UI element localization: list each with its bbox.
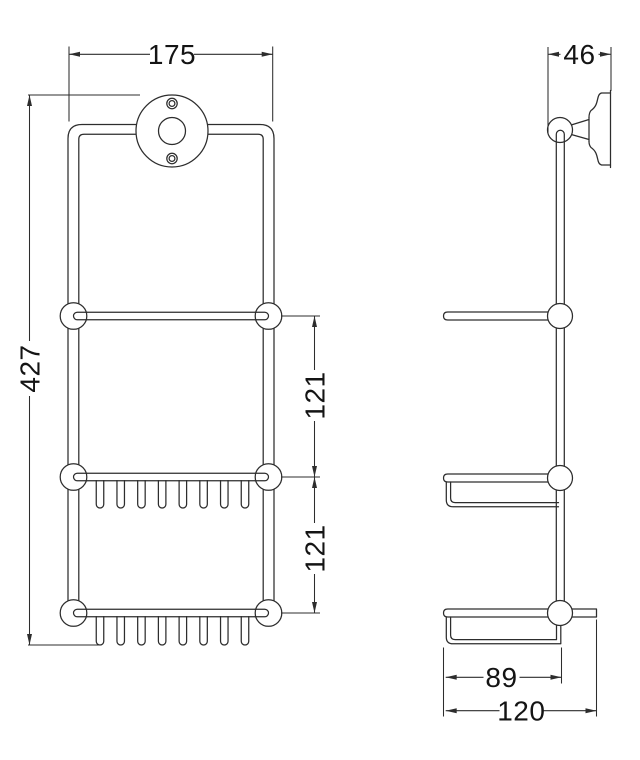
side-view xyxy=(444,91,611,644)
arrowhead xyxy=(312,316,317,327)
dim-label-basket-depth: 89 xyxy=(485,662,517,693)
middle-basket-prongs xyxy=(96,481,249,508)
wall-plate xyxy=(136,95,208,167)
wall-bracket xyxy=(570,91,611,168)
basket-prong xyxy=(200,481,208,508)
shower-caddy-dimension-drawing: 175 46 427 xyxy=(0,0,640,760)
ball-joint xyxy=(548,304,573,329)
arrowhead xyxy=(551,675,562,680)
arrowhead xyxy=(446,675,457,680)
side-shelf-arm-level-2 xyxy=(444,474,561,482)
dim-label-overall-depth: 120 xyxy=(497,696,545,727)
front-ball-joints xyxy=(60,303,282,627)
basket-prong xyxy=(117,617,125,645)
technical-drawing-canvas: 175 46 427 xyxy=(0,0,640,760)
dim-label-overall-height: 427 xyxy=(15,344,46,392)
arrowhead xyxy=(446,708,457,713)
frame-outer-outline xyxy=(68,125,274,614)
bracket-cone-edge xyxy=(570,134,590,140)
basket-prong xyxy=(221,481,229,508)
arrowhead xyxy=(69,52,80,57)
ball-joint xyxy=(548,466,573,491)
side-basket-profile-inner xyxy=(451,617,557,640)
bracket-bell-bottom-curve xyxy=(589,142,611,166)
basket-prong xyxy=(179,481,187,508)
front-view xyxy=(60,95,282,645)
dimension-upper-shelf-spacing: 121 xyxy=(281,316,331,477)
side-shelf-arm-level-3 xyxy=(444,609,597,617)
basket-prong xyxy=(96,617,104,645)
basket-prong xyxy=(179,617,187,645)
wall-plate-center-hole xyxy=(159,118,186,145)
dim-label-lower-shelf-spacing: 121 xyxy=(300,524,331,572)
arrowhead xyxy=(262,52,273,57)
arrowhead xyxy=(312,477,317,488)
frame-inner-outline xyxy=(79,134,263,613)
basket-prong xyxy=(241,617,249,645)
dimension-overall-height: 427 xyxy=(15,95,141,645)
dim-label-bracket-depth: 46 xyxy=(563,39,595,70)
shelf-bar-level-2 xyxy=(74,473,269,481)
bracket-bell-top-curve xyxy=(589,93,611,118)
arrowhead xyxy=(600,52,611,57)
basket-prong xyxy=(138,481,146,508)
dim-label-overall-width: 175 xyxy=(148,39,196,70)
side-basket-profile-inner xyxy=(451,482,559,503)
arrowhead xyxy=(586,708,597,713)
shelf-bar-level-1 xyxy=(74,312,269,320)
basket-prong xyxy=(158,481,166,508)
arrowhead xyxy=(548,52,559,57)
basket-prong xyxy=(117,481,125,508)
basket-prong xyxy=(241,481,249,508)
basket-prong xyxy=(200,617,208,645)
shelf-bar-level-3 xyxy=(74,609,269,617)
basket-prong xyxy=(96,481,104,508)
bracket-cone-edge xyxy=(570,120,590,126)
ball-joint xyxy=(548,601,573,626)
side-shelf-arm-level-1 xyxy=(444,312,561,320)
dimension-lower-shelf-spacing: 121 xyxy=(281,477,331,613)
bottom-basket-prongs xyxy=(96,617,249,645)
basket-prong xyxy=(138,617,146,645)
side-ball-joints xyxy=(548,118,573,626)
dimension-overall-depth: 120 xyxy=(446,620,597,727)
basket-prong xyxy=(158,617,166,645)
arrowhead xyxy=(27,95,32,106)
basket-prong xyxy=(221,617,229,645)
dim-label-upper-shelf-spacing: 121 xyxy=(300,371,331,419)
arrowhead xyxy=(27,634,32,645)
arrowhead xyxy=(312,602,317,613)
arrowhead xyxy=(312,466,317,477)
